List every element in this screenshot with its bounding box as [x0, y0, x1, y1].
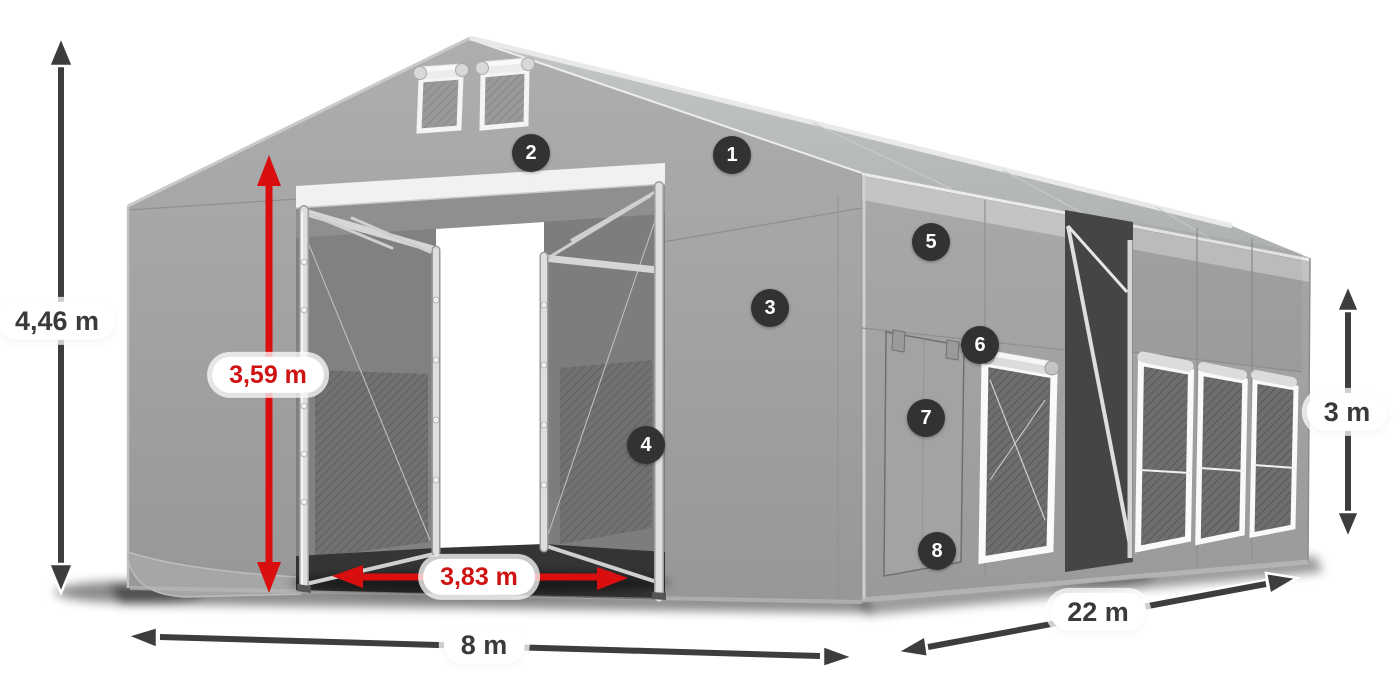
- callout-marker-5[interactable]: 5: [912, 223, 950, 261]
- dimension-label-front-width: 8 m: [444, 626, 525, 664]
- callout-marker-3[interactable]: 3: [751, 289, 789, 327]
- callout-marker-7[interactable]: 7: [907, 399, 945, 437]
- mesh-window-near: [980, 350, 1059, 560]
- tent-illustration: [0, 0, 1400, 700]
- callout-marker-8[interactable]: 8: [918, 532, 956, 570]
- dimension-label-door-width: 3,83 m: [423, 559, 535, 595]
- callout-marker-1[interactable]: 1: [713, 136, 751, 174]
- callout-marker-4[interactable]: 4: [627, 426, 665, 464]
- mesh-windows-far: [1138, 357, 1296, 549]
- dimension-label-clear-height: 3,59 m: [212, 357, 324, 393]
- tent-dimension-diagram: 4,46 m 3,59 m 3,83 m 8 m 22 m 3 m 1 2 3 …: [0, 0, 1400, 700]
- dimension-label-side-length: 22 m: [1050, 593, 1146, 631]
- dimension-label-wall-height: 3 m: [1307, 393, 1388, 431]
- dimension-label-total-height: 4,46 m: [0, 302, 116, 340]
- callout-marker-6[interactable]: 6: [961, 326, 999, 364]
- callout-marker-2[interactable]: 2: [512, 134, 550, 172]
